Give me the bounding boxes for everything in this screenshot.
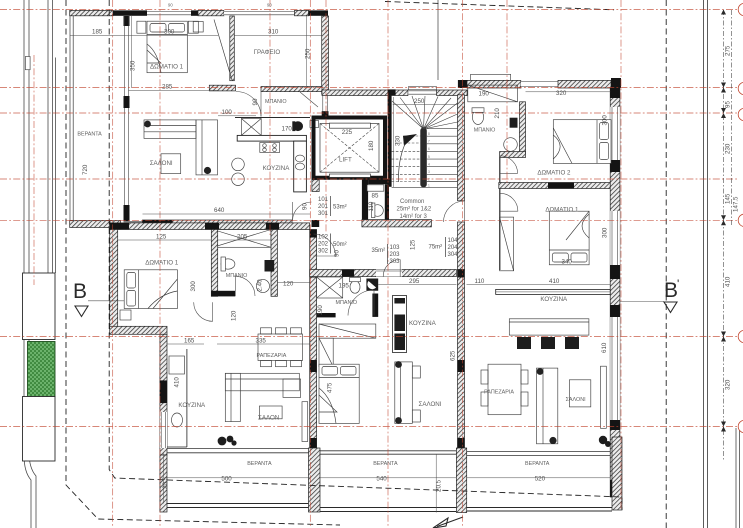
svg-text:110: 110 [475, 278, 485, 285]
svg-text:14m² for 3: 14m² for 3 [400, 214, 428, 220]
svg-text:320: 320 [725, 379, 732, 390]
svg-text:95: 95 [725, 101, 732, 108]
svg-text:475: 475 [326, 382, 333, 393]
svg-text:275: 275 [725, 45, 732, 56]
svg-text:204: 204 [448, 245, 459, 251]
svg-text:147.5: 147.5 [733, 196, 740, 212]
svg-text:LIFT: LIFT [339, 157, 352, 164]
svg-text:125: 125 [156, 233, 167, 240]
svg-text:540: 540 [376, 475, 387, 482]
svg-text:B: B [664, 279, 678, 302]
svg-text:185: 185 [92, 28, 103, 35]
svg-text:320: 320 [556, 90, 567, 97]
svg-text:85: 85 [372, 193, 379, 200]
svg-text:53m²: 53m² [333, 205, 347, 211]
svg-text:ΜΠΑΝΙΟ: ΜΠΑΝΙΟ [226, 273, 248, 279]
svg-text:410: 410 [174, 377, 181, 388]
svg-text:25m² for 1&2: 25m² for 1&2 [397, 207, 432, 213]
svg-text:120: 120 [283, 280, 294, 287]
svg-text:350: 350 [130, 60, 137, 71]
svg-text:3: 3 [428, 170, 430, 174]
svg-text:90: 90 [334, 250, 341, 257]
svg-text:165: 165 [184, 337, 195, 344]
svg-text:90: 90 [168, 3, 173, 8]
svg-text:ΔΩΜΑΤΙΟ 1: ΔΩΜΑΤΙΟ 1 [145, 260, 179, 267]
svg-text:ΡΑΠΕΖΑΡΙΑ: ΡΑΠΕΖΑΡΙΑ [484, 390, 514, 396]
svg-text:203: 203 [390, 252, 401, 258]
svg-text:300: 300 [190, 281, 197, 292]
svg-text:20.5: 20.5 [436, 479, 443, 492]
svg-text:250: 250 [414, 98, 425, 105]
svg-text:50m²: 50m² [333, 242, 347, 248]
svg-text:ΜΠΑΝΙΟ: ΜΠΑΝΙΟ [336, 300, 358, 306]
svg-text:310: 310 [268, 28, 279, 35]
svg-text:500: 500 [221, 475, 232, 482]
svg-text:301: 301 [318, 211, 329, 217]
svg-text:170: 170 [282, 126, 293, 133]
svg-text:610: 610 [601, 342, 608, 353]
svg-text:104: 104 [448, 238, 459, 244]
svg-text:2: 2 [428, 178, 430, 182]
svg-text:300: 300 [602, 115, 609, 126]
svg-text:75m²: 75m² [429, 245, 443, 251]
svg-text:ΚΟΥΖΙΝΑ: ΚΟΥΖΙΝΑ [263, 165, 291, 172]
svg-text:100: 100 [222, 109, 233, 116]
svg-text:190: 190 [317, 305, 324, 316]
svg-text:101: 101 [318, 197, 329, 203]
svg-text:ΔΩΜΑΤΙΟ 1: ΔΩΜΑΤΙΟ 1 [545, 207, 579, 214]
svg-text:335: 335 [256, 337, 267, 344]
svg-text:180: 180 [368, 140, 375, 151]
svg-text:2.40: 2.40 [256, 279, 263, 292]
svg-text:202: 202 [318, 242, 329, 248]
svg-text:ΣΑΛΟΝΙ: ΣΑΛΟΝΙ [566, 397, 586, 403]
svg-text:302: 302 [318, 249, 329, 255]
svg-text:Common: Common [400, 199, 424, 205]
svg-text:ΣΑΛΟΝ: ΣΑΛΟΝ [258, 415, 279, 422]
svg-text:230: 230 [725, 143, 732, 154]
svg-text:225: 225 [342, 129, 353, 136]
svg-text:ΜΠΑΝΙΟ: ΜΠΑΝΙΟ [265, 99, 287, 105]
svg-text:ΒΕΡΑΝΤΑ: ΒΕΡΑΝΤΑ [247, 461, 272, 467]
svg-text:90: 90 [252, 98, 259, 105]
svg-text:303: 303 [390, 259, 401, 265]
svg-text:ΔΩΜΑΤΙΟ 1: ΔΩΜΑΤΙΟ 1 [150, 64, 184, 71]
svg-text:300: 300 [164, 28, 175, 35]
svg-text:330: 330 [395, 135, 402, 146]
svg-text:295: 295 [409, 278, 420, 285]
svg-text:300: 300 [602, 227, 609, 238]
svg-text:250: 250 [304, 48, 311, 59]
svg-text:201: 201 [318, 204, 329, 210]
svg-text:205: 205 [237, 233, 248, 240]
svg-text:ΜΠΑΝΙΟ: ΜΠΑΝΙΟ [474, 128, 496, 134]
svg-text:ΔΩΜΑΤΙΟ 2: ΔΩΜΑΤΙΟ 2 [537, 170, 571, 177]
svg-text:520: 520 [535, 475, 546, 482]
svg-text:304: 304 [448, 252, 459, 258]
svg-text:210: 210 [494, 108, 501, 119]
svg-text:ΣΑΛΟΝΙ: ΣΑΛΟΝΙ [419, 401, 442, 408]
svg-text:145: 145 [725, 193, 732, 204]
svg-text:102: 102 [318, 235, 329, 241]
svg-text:ΚΟΥΖΙΝΑ: ΚΟΥΖΙΝΑ [409, 320, 437, 327]
svg-text:5: 5 [428, 155, 430, 159]
svg-text:ΒΕΡΑΝΤΑ: ΒΕΡΑΝΤΑ [373, 461, 398, 467]
svg-text:B: B [73, 280, 87, 303]
svg-text:6: 6 [428, 147, 430, 151]
svg-text:125: 125 [409, 239, 416, 250]
svg-text:90: 90 [267, 3, 272, 8]
svg-text:ΒΕΡΑΝΤΑ: ΒΕΡΑΝΤΑ [77, 132, 102, 138]
svg-text:90: 90 [302, 203, 309, 210]
svg-text:35m²: 35m² [372, 248, 386, 254]
svg-text:720: 720 [82, 164, 89, 175]
svg-text:103: 103 [390, 245, 401, 251]
svg-text:ΚΟΥΖΙΝΑ: ΚΟΥΖΙΝΑ [540, 296, 568, 303]
svg-text:7: 7 [428, 140, 430, 144]
svg-text:340: 340 [562, 259, 573, 266]
svg-text:20.5: 20.5 [162, 476, 169, 489]
svg-text:ΓΡΑΦΕΙΟ: ΓΡΑΦΕΙΟ [254, 49, 281, 56]
svg-text:640: 640 [214, 207, 225, 214]
svg-text:ΒΕΡΑΝΤΑ: ΒΕΡΑΝΤΑ [525, 461, 550, 467]
svg-text:': ' [677, 277, 679, 291]
svg-text:120: 120 [230, 310, 237, 321]
svg-text:ΡΑΠΕΖΑΡΙΑ: ΡΑΠΕΖΑΡΙΑ [257, 353, 287, 359]
svg-text:110: 110 [368, 201, 375, 211]
svg-text:8: 8 [428, 132, 430, 136]
svg-text:285: 285 [162, 84, 173, 91]
svg-text:ΣΑΛΟΝΙ: ΣΑΛΟΝΙ [150, 160, 173, 167]
svg-text:410: 410 [549, 278, 560, 285]
svg-text:625: 625 [450, 350, 457, 361]
svg-text:195: 195 [339, 283, 350, 290]
svg-text:1: 1 [428, 183, 430, 187]
svg-text:190: 190 [479, 91, 490, 98]
svg-text:410: 410 [725, 276, 732, 287]
svg-text:4: 4 [428, 163, 430, 167]
svg-text:ΚΟΥΖΙΝΑ: ΚΟΥΖΙΝΑ [178, 402, 206, 409]
